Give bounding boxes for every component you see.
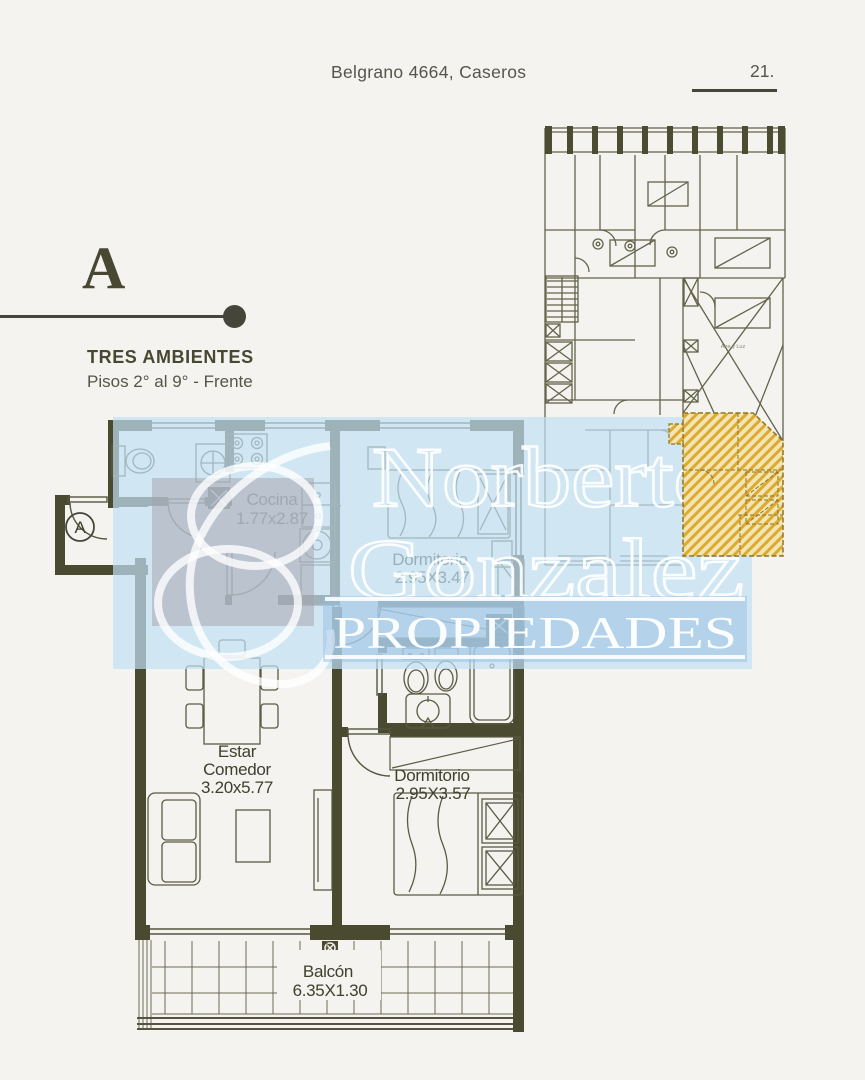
entrance-label: A [74,518,86,537]
main-plan: A [55,420,524,1032]
brochure-page: { "header": { "address": "Belgrano 4664,… [0,0,865,1080]
room-label-dormitorio1: Dormitorio [392,550,467,569]
dormitorio2-furniture [394,793,522,895]
entrance: A [66,513,94,541]
room-label-cocina: Cocina [246,490,298,509]
bathroom2-fixtures [403,642,514,728]
room-dims-dormitorio1: 2.95X3.47 [395,568,470,587]
keyplan-wall-stubs [545,126,785,154]
room-label-estar-line2: Comedor [203,760,271,779]
room-dims-dormitorio2: 2.95X3.57 [396,784,471,803]
room-dims-estar: 3.20x5.77 [201,778,273,797]
room-dims-balcon: 6.35X1.30 [293,981,368,1000]
floorplan-drawing: A [0,0,865,1080]
room-dims-cocina: 1.77x2.87 [236,509,308,528]
room-label-balcon: Balcón [303,962,353,981]
room-label-estar-line1: Estar [218,742,257,761]
key-plan: Aire y Luz [545,126,785,565]
courtyard-label: Aire y Luz [721,344,746,350]
room-label-dormitorio2: Dormitorio [394,766,469,785]
bathroom1-fixtures [112,444,230,482]
